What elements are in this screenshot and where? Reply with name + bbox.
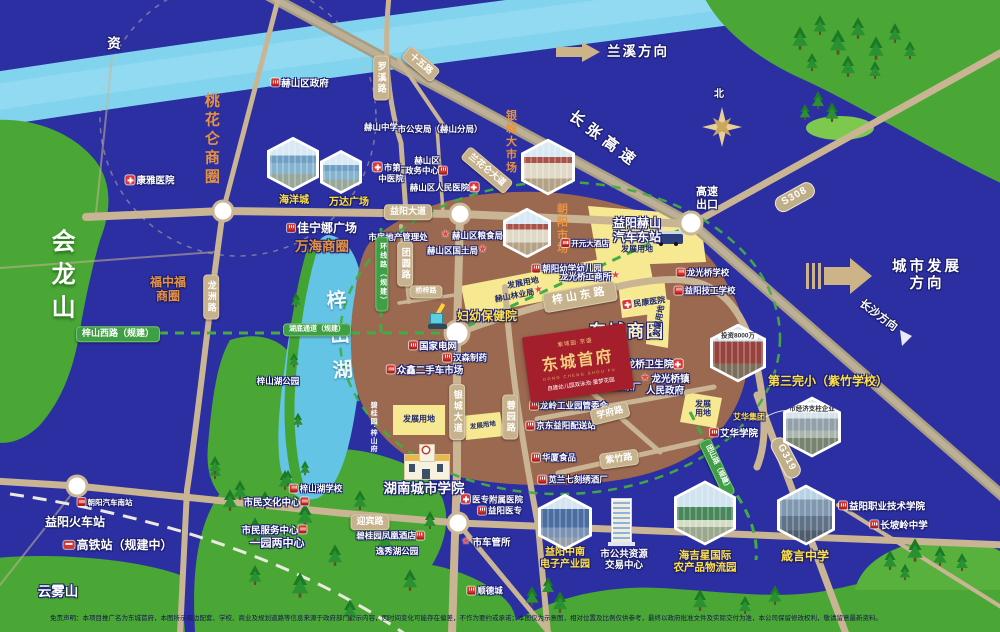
poi-changpoling-school: 长坡岭中学 <box>870 520 928 531</box>
road-qiaozi: 桥梓路 <box>410 285 443 298</box>
hex-zhongnan-photo-photo <box>541 497 589 548</box>
poi-longling-industrial-text: 龙岭工业园管委会 <box>540 401 608 411</box>
road-yincheng-avenue: 银城大道 <box>449 384 465 440</box>
poi-citizen-culture-center-text: 市民文化中心 <box>243 497 300 508</box>
poi-grain-bureau-text: 赫山区粮食局 <box>452 230 503 240</box>
poi-maternity-hospital-text: 妇幼保健院 <box>457 309 517 323</box>
road-huanxian-planned: 环线路（规建） <box>375 237 388 312</box>
road-qiaozi-text: 桥梓路 <box>416 287 437 294</box>
road-xuefu: 学府路 <box>589 401 631 426</box>
poi-shundecheng: 顺德城 <box>467 586 503 597</box>
poi-longling-industrial: 龙岭工业园管委会 <box>530 401 608 412</box>
poi-citizen-culture-center: 市民文化中心 <box>243 497 310 508</box>
road-lanhualun: 兰花仑大道 <box>460 146 514 195</box>
road-luoxi: 罗溪路 <box>373 56 389 101</box>
road-xuefu-text: 学府路 <box>595 404 624 420</box>
hex-wanda-photo <box>320 150 362 194</box>
road-lake-tunnel: 湖底通道（规建） <box>283 323 351 336</box>
road-shiwu-text: 十五路 <box>408 51 435 76</box>
poi-heshan-middle-school-text: 赫山中学 <box>364 122 398 132</box>
poi-hansen-pharma-text: 汉森制药 <box>453 353 487 363</box>
poi-technical-school: 益阳技工学校 <box>674 286 735 297</box>
hex-pillar-enterprise-photo: 市经济支柱企业 <box>783 397 841 458</box>
poi-forestry-bureau-text: 赫山林业局 <box>494 287 535 303</box>
bldg-icon <box>409 342 417 350</box>
label-zhongnan-park-text: 益阳中南 电子产业园 <box>540 547 590 570</box>
poi-bgy-phoenix-hotel-text: 碧桂园凤凰酒店 <box>356 531 416 541</box>
poi-yiyang-railway-station: 益阳火车站 <box>45 515 105 529</box>
poi-huaxia-food: 华厦食品 <box>532 453 576 464</box>
mountain-huilongshan: 会龙山 <box>46 229 74 328</box>
mountain-yunwushan: 云雾山 <box>38 584 79 600</box>
cross-icon <box>469 183 478 192</box>
hex-zhongnan-photo <box>538 494 592 551</box>
label-zhenyan-school: 箴言中学 <box>781 549 829 563</box>
hex-investment-photo: 投资8000万 <box>710 324 766 383</box>
bldg-icon <box>532 264 540 272</box>
road-shiwu: 十五路 <box>401 45 441 82</box>
poi-huaxia-food-text: 华厦食品 <box>542 453 576 463</box>
poi-aihua-college-text: 艾华学院 <box>720 428 758 439</box>
poi-real-estate-admin: 市房地产管理处 <box>368 232 428 242</box>
poi-renmin-hospital-text: 赫山区人民医院 <box>410 182 470 192</box>
poi-longguangqiao-govt-text: 龙光桥镇 人民政府 <box>646 374 690 396</box>
district-wanhai: 万海商圈 <box>295 239 349 255</box>
poi-public-resource-center-text: 市公共资源 交易中心 <box>600 549 648 571</box>
bldg-icon <box>443 353 451 361</box>
plot-dev-strip: 发展用地 <box>506 275 539 290</box>
bldg-icon <box>870 521 878 529</box>
plot-dev-south2-text: 发展用地 <box>470 420 497 431</box>
park-zishanhu: 梓山湖公园 <box>257 376 300 386</box>
dir-lanxi: 兰溪方向 <box>607 44 669 60</box>
poi-first-tcm-hospital-text: 市第一 中医院 <box>378 162 409 183</box>
poi-citizen-service-center-text: 市民服务中心 <box>241 525 298 536</box>
plot-dev-south1-text: 发展用地 <box>403 414 435 423</box>
poi-yixiuhu-park: 逸秀湖公园 <box>376 546 419 556</box>
poi-aihua-college: 艾华学院 <box>710 428 758 439</box>
bldg-icon <box>677 268 685 276</box>
star-icon: ★ <box>462 537 471 547</box>
compass-north-label: 北 <box>714 89 724 101</box>
bldg-icon <box>78 498 86 506</box>
poi-no3-primary: 第三完小（紫竹学校） <box>768 374 888 388</box>
label-haijixing-text: 海吉星国际 农产品物流园 <box>674 550 737 574</box>
plot-dev-southeast: 发展 用地 <box>695 400 711 419</box>
dir-changsha: 长沙方向 <box>857 298 900 335</box>
star-icon: ★ <box>611 271 620 281</box>
poi-one-park-two-centers: 一园两中心 <box>250 538 305 551</box>
poi-bgy-phoenix-hotel: 碧桂园凤凰酒店 <box>356 531 426 542</box>
poi-renmin-hospital: 赫山区人民医院 <box>410 182 481 193</box>
bldg-icon <box>526 421 534 429</box>
market-chaoyang: 朝阳市场 <box>555 203 568 255</box>
dir-city-development: 城市发展方向 <box>891 259 964 293</box>
poi-shundecheng-text: 顺德城 <box>477 586 503 596</box>
poi-jianingna-plaza-text: 佳宁娜广场 <box>297 221 357 235</box>
poi-longguangqiao-school: 龙光桥学校 <box>677 268 730 279</box>
poi-state-grid-text: 国家电网 <box>419 341 457 352</box>
poi-longguangqiao-govt: ★龙光桥镇 人民政府 <box>641 373 690 396</box>
train-icon <box>63 541 74 549</box>
poi-longqiao-clinic-text: 龙桥卫生院 <box>626 359 674 370</box>
road-yiyang-avenue-text: 益阳大道 <box>390 206 426 216</box>
poi-auto-east-station: 益阳赫山 汽车东站 <box>613 216 661 244</box>
plot-dev-southeast-text: 发展 用地 <box>695 400 711 418</box>
road-longzhou: 龙洲路 <box>203 275 219 320</box>
road-tuanyuan-text: 团圆路 <box>401 248 411 281</box>
bldg-icon <box>478 506 486 514</box>
hex-yincheng-market-photo <box>521 139 575 196</box>
poi-grain-bureau: ★赫山区粮食局 <box>441 230 503 242</box>
poi-haiyangcheng-text: 海洋城 <box>279 195 309 206</box>
plot-dev-strip-text: 发展用地 <box>506 275 539 290</box>
poi-maternity-hospital: 妇幼保健院 <box>457 309 517 323</box>
poi-haiyangcheng: 海洋城 <box>279 195 309 207</box>
poi-one-park-two-centers-text: 一园两中心 <box>250 538 305 550</box>
poi-heshan-district-govt: 赫山区政府 <box>271 78 329 89</box>
plot-dev-south2: 发展用地 <box>470 420 497 431</box>
poi-forestry-bureau: 赫山林业局★ <box>494 284 546 306</box>
poi-industry-office: 龙光桥工商所★ <box>560 271 622 283</box>
poi-yizhuan-hospital-text: 医专附属医院 <box>472 494 523 504</box>
poi-kaiyuan-hotel-text: 开元大酒店 <box>571 239 609 248</box>
bldg-icon <box>839 502 847 510</box>
dir-city-development-text: 城市发展方向 <box>892 259 962 292</box>
poi-yiyang-medical-college-text: 益阳医专 <box>488 506 522 516</box>
bldg-icon <box>387 366 395 374</box>
poi-yizhuan-hospital: 医专附属医院 <box>461 494 523 505</box>
label-zhongnan-park: 益阳中南 电子产业园 <box>540 547 590 571</box>
bldg-icon <box>271 79 279 87</box>
poi-minkang-hospital: 民康医院 <box>622 295 666 312</box>
poi-longguangqiao-school-text: 龙光桥学校 <box>687 268 730 278</box>
poi-expressway-exit: 高速 出口 <box>696 186 718 212</box>
poi-real-estate-admin-text: 市房地产管理处 <box>368 232 428 242</box>
route-s308-text: S308 <box>780 185 809 208</box>
road-yingbin: 迎宾路 <box>350 514 389 530</box>
poi-public-security-text: 市公安局（赫山分局） <box>397 124 482 134</box>
poi-yiyang-railway-station-text: 益阳火车站 <box>45 515 105 529</box>
poi-bgy-zishanfu: 碧桂园·梓山府 <box>369 401 377 452</box>
road-tuanyuan: 团圆路 <box>397 242 413 287</box>
bldg-icon <box>561 239 569 247</box>
star-icon: ★ <box>533 285 544 297</box>
map-labels: 资会龙山云雾山梓山湖梓山湖公园桃花仑商圈万海商圈福中福 商圈东城商圈银城大市场朝… <box>0 0 1000 632</box>
poi-expressway-exit-text: 高速 出口 <box>696 186 718 211</box>
poi-embroidery-winery-text: 苋兰七刻绣酒厂 <box>548 475 608 485</box>
bldg-icon <box>710 429 718 437</box>
poi-wanda-plaza-text: 万达广场 <box>329 197 369 208</box>
poi-hsr-station: 高铁站（规建中） <box>63 538 172 552</box>
dir-changsha-text: 长沙方向 <box>857 298 899 334</box>
star-icon: ★ <box>441 230 450 240</box>
poi-changpoling-school-text: 长坡岭中学 <box>880 520 928 531</box>
bldg-icon <box>416 531 424 539</box>
plot-dev-south1: 发展用地 <box>403 414 435 423</box>
bldg-icon <box>538 475 546 483</box>
bldg-icon <box>290 484 298 492</box>
hex-haiyangcheng-photo <box>267 137 319 192</box>
cross-icon <box>373 163 382 172</box>
bldg-icon <box>674 286 682 294</box>
bldg-icon <box>532 453 540 461</box>
poi-technical-school-text: 益阳技工学校 <box>684 286 735 296</box>
poi-vehicle-admin: ★市车管所 <box>462 537 511 549</box>
poi-jd-station: 京东益阳配送站 <box>526 421 596 432</box>
road-luoxi-text: 罗溪路 <box>377 62 387 95</box>
poi-kangya-hospital-text: 康雅医院 <box>136 175 174 186</box>
star-icon: ★ <box>478 245 487 255</box>
hex-chaoyang-market-photo-photo <box>506 211 548 255</box>
label-zhenyan-school-text: 箴言中学 <box>781 549 829 563</box>
park-zishanhu-text: 梓山湖公园 <box>257 376 300 386</box>
poi-heshan-middle-school: 赫山中学 <box>364 122 398 132</box>
poi-yixiuhu-park-text: 逸秀湖公园 <box>376 546 419 556</box>
poi-bgy-zishanfu-text: 碧桂园·梓山府 <box>370 401 377 452</box>
poi-zishanhu-school: 梓山湖学校 <box>290 484 343 495</box>
poi-wanda-plaza: 万达广场 <box>329 197 369 209</box>
route-s308: S308 <box>772 179 818 215</box>
district-taohualun-text: 桃花仑商圈 <box>203 93 220 188</box>
poi-land-bureau: 赫山区国土局★ <box>427 245 489 257</box>
market-chaoyang-text: 朝阳市场 <box>555 203 567 255</box>
cross-icon <box>461 495 470 504</box>
poi-jianingna-plaza: 佳宁娜广场 <box>287 221 357 235</box>
lake-zishan-text: 梓山湖 <box>322 289 353 396</box>
road-zishan-east: 梓山东路 <box>542 281 618 314</box>
road-huanxian-planned-text: 环线路（规建） <box>380 243 387 306</box>
road-zishan-east-text: 梓山东路 <box>551 285 608 307</box>
road-longzhou-text: 龙洲路 <box>207 281 217 314</box>
star-icon: ★ <box>641 373 650 383</box>
road-zishan-west-text: 梓山西路（规建） <box>82 328 154 338</box>
poi-yiyang-medical-college: 益阳医专 <box>478 506 522 517</box>
road-yiyang-avenue: 益阳大道 <box>384 204 432 220</box>
poi-public-resource-center: 市公共资源 交易中心 <box>600 549 648 571</box>
road-zizhu-text: 紫竹路 <box>605 451 633 465</box>
district-fuzhongfu-text: 福中福 商圈 <box>150 275 186 303</box>
poi-used-car-market: 众鑫二手车市场 <box>387 365 464 376</box>
road-rongyuan-text: 蓉园路 <box>506 401 516 434</box>
mountain-huilongshan-text: 会龙山 <box>47 229 74 328</box>
poi-aihua-group: 艾华集团 <box>733 412 765 421</box>
cross-icon <box>673 359 682 368</box>
hex-chaoyang-market-photo <box>503 208 551 258</box>
hwy-changzhang-text: 长张高速 <box>566 108 643 172</box>
poi-kaiyuan-hotel: 开元大酒店 <box>561 239 609 249</box>
poi-first-tcm-hospital: 市第一 中医院 <box>373 162 410 183</box>
poi-kangya-hospital: 康雅医院 <box>125 175 174 186</box>
river-name-text: 资 <box>107 36 121 51</box>
location-map: 资会龙山云雾山梓山湖梓山湖公园桃花仑商圈万海商圈福中福 商圈东城商圈银城大市场朝… <box>0 0 1000 632</box>
bldg-icon <box>467 586 475 594</box>
dir-lanxi-text: 兰溪方向 <box>607 44 669 59</box>
lake-zishan: 梓山湖 <box>321 289 354 396</box>
disclaimer-text: 免责声明：本项目推广名为东城首府，本图所示周边配套、学校、商业及规划道路等信息来… <box>50 615 978 623</box>
plot-dev-northeast-text: 发展用地 <box>621 244 653 253</box>
hwy-changzhang: 长张高速 <box>565 108 643 173</box>
poi-chaoyang-kindergarten: 朝阳幼学幼儿园 <box>532 264 602 275</box>
road-lake-tunnel-text: 湖底通道（规建） <box>289 325 345 332</box>
poi-hansen-pharma: 汉森制药 <box>443 353 487 364</box>
poi-heshan-district-govt-text: 赫山区政府 <box>281 78 329 89</box>
poi-minkang-hospital-text: 民康医院 <box>633 295 666 308</box>
poi-no3-primary-text: 第三完小（紫竹学校） <box>768 374 888 388</box>
district-taohualun: 桃花仑商圈 <box>202 93 220 188</box>
label-haijixing: 海吉星国际 农产品物流园 <box>674 550 737 575</box>
poi-chaoyang-south-station: 朝阳汽车南站 <box>78 498 133 508</box>
poi-longqiao-clinic: 龙桥卫生院 <box>626 359 685 370</box>
hex-zhenyan-photo <box>777 485 835 546</box>
plot-dev-east: 发展用地 <box>652 304 667 337</box>
poi-state-grid: 国家电网 <box>409 341 457 352</box>
poi-used-car-market-text: 众鑫二手车市场 <box>397 365 464 376</box>
road-zishan-west: 梓山西路（规建） <box>76 326 160 342</box>
plot-dev-northeast: 发展用地 <box>621 244 653 253</box>
poi-aihua-group-text: 艾华集团 <box>733 412 765 421</box>
poi-vocational-college: 益阳职业技术学院 <box>839 501 925 512</box>
poi-citizen-service-center: 市民服务中心 <box>241 525 308 536</box>
poi-chaoyang-south-station-text: 朝阳汽车南站 <box>88 498 133 507</box>
poi-zishanhu-school-text: 梓山湖学校 <box>300 484 343 494</box>
hex-wanda-photo-photo <box>323 153 359 191</box>
district-fuzhongfu: 福中福 商圈 <box>150 275 186 303</box>
bldg-icon <box>287 224 295 232</box>
cross-icon <box>125 175 134 184</box>
hex-zhenyan-photo-photo <box>780 488 832 543</box>
plot-dev-east-text: 发展用地 <box>652 304 666 337</box>
hex-investment-photo-caption: 投资8000万 <box>718 330 758 340</box>
bldg-icon <box>301 498 309 506</box>
poi-hunan-city-university-text: 湖南城市学院 <box>384 481 465 496</box>
road-lanhualun-text: 兰花仑大道 <box>467 151 508 188</box>
poi-vocational-college-text: 益阳职业技术学院 <box>849 501 925 512</box>
hex-haiyangcheng-photo-photo <box>270 140 316 189</box>
market-yincheng-text: 银城大市场 <box>504 110 516 175</box>
cross-icon <box>622 299 632 309</box>
river-name: 资 <box>107 36 121 52</box>
district-wanhai-text: 万海商圈 <box>295 239 349 254</box>
poi-vehicle-admin-text: 市车管所 <box>472 538 510 549</box>
poi-auto-east-station-text: 益阳赫山 汽车东站 <box>613 216 661 244</box>
hex-haijixing-photo <box>674 480 736 545</box>
poi-hsr-station-text: 高铁站（规建中） <box>76 538 172 552</box>
poi-hunan-city-university: 湖南城市学院 <box>384 481 465 497</box>
poi-zhengwu-center: 赫山区 政务中心 <box>405 156 449 177</box>
compass-north-label-text: 北 <box>714 89 724 100</box>
road-yincheng-avenue-text: 银城大道 <box>453 390 463 434</box>
poi-public-security: 市公安局（赫山分局） <box>397 124 482 134</box>
mountain-yunwushan-text: 云雾山 <box>38 584 79 599</box>
poi-embroidery-winery: 苋兰七刻绣酒厂 <box>538 475 608 486</box>
road-zizhu: 紫竹路 <box>599 449 640 470</box>
hex-yincheng-market-photo-photo <box>524 142 572 193</box>
bldg-icon <box>439 166 447 174</box>
poi-chaoyang-kindergarten-text: 朝阳幼学幼儿园 <box>542 264 602 274</box>
hex-haijixing-photo-photo <box>677 483 733 542</box>
hex-pillar-enterprise-photo-caption: 市经济支柱企业 <box>786 403 838 413</box>
poi-jd-station-text: 京东益阳配送站 <box>536 421 596 431</box>
road-yingbin-text: 迎宾路 <box>356 516 383 526</box>
road-rongyuan: 蓉园路 <box>502 395 518 440</box>
bldg-icon <box>299 526 307 534</box>
poi-land-bureau-text: 赫山区国土局 <box>427 245 478 255</box>
poi-industry-office-text: 龙光桥工商所 <box>560 271 611 281</box>
market-yincheng: 银城大市场 <box>504 110 517 175</box>
poi-zhengwu-center-text: 赫山区 政务中心 <box>405 156 440 176</box>
